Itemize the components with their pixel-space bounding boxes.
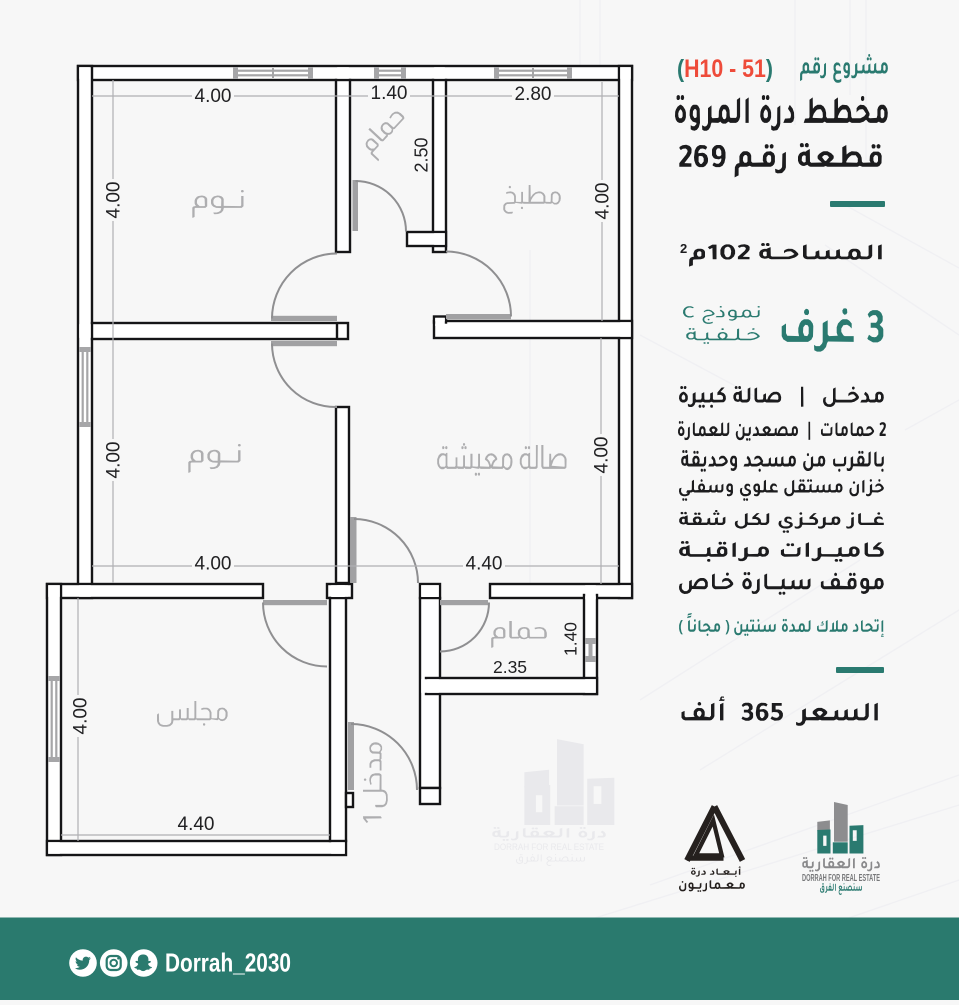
svg-text:4.40: 4.40	[466, 554, 503, 575]
svg-text:4.00: 4.00	[593, 183, 614, 220]
svg-text:(H10 - 51): (H10 - 51)	[677, 55, 773, 83]
svg-text:DORRAH FOR REAL ESTATE: DORRAH FOR REAL ESTATE	[494, 842, 604, 852]
svg-text:1.40: 1.40	[561, 622, 581, 656]
svg-text:Dorrah_2030: Dorrah_2030	[165, 948, 291, 978]
svg-text:2.50: 2.50	[412, 137, 432, 172]
svg-text:2: 2	[680, 241, 687, 256]
svg-text:4.00: 4.00	[104, 182, 125, 219]
svg-text:4.00: 4.00	[195, 86, 232, 107]
svg-text:1.40: 1.40	[371, 83, 408, 104]
svg-text:4.00: 4.00	[592, 437, 613, 474]
svg-text:2.35: 2.35	[493, 657, 527, 677]
svg-text:4.00: 4.00	[104, 442, 125, 479]
svg-text:DORRAH FOR REAL ESTATE: DORRAH FOR REAL ESTATE	[802, 872, 880, 884]
svg-text:4.00: 4.00	[195, 554, 232, 575]
svg-text:2.80: 2.80	[515, 84, 552, 105]
svg-text:4.00: 4.00	[71, 698, 92, 735]
svg-text:4.40: 4.40	[178, 814, 215, 835]
